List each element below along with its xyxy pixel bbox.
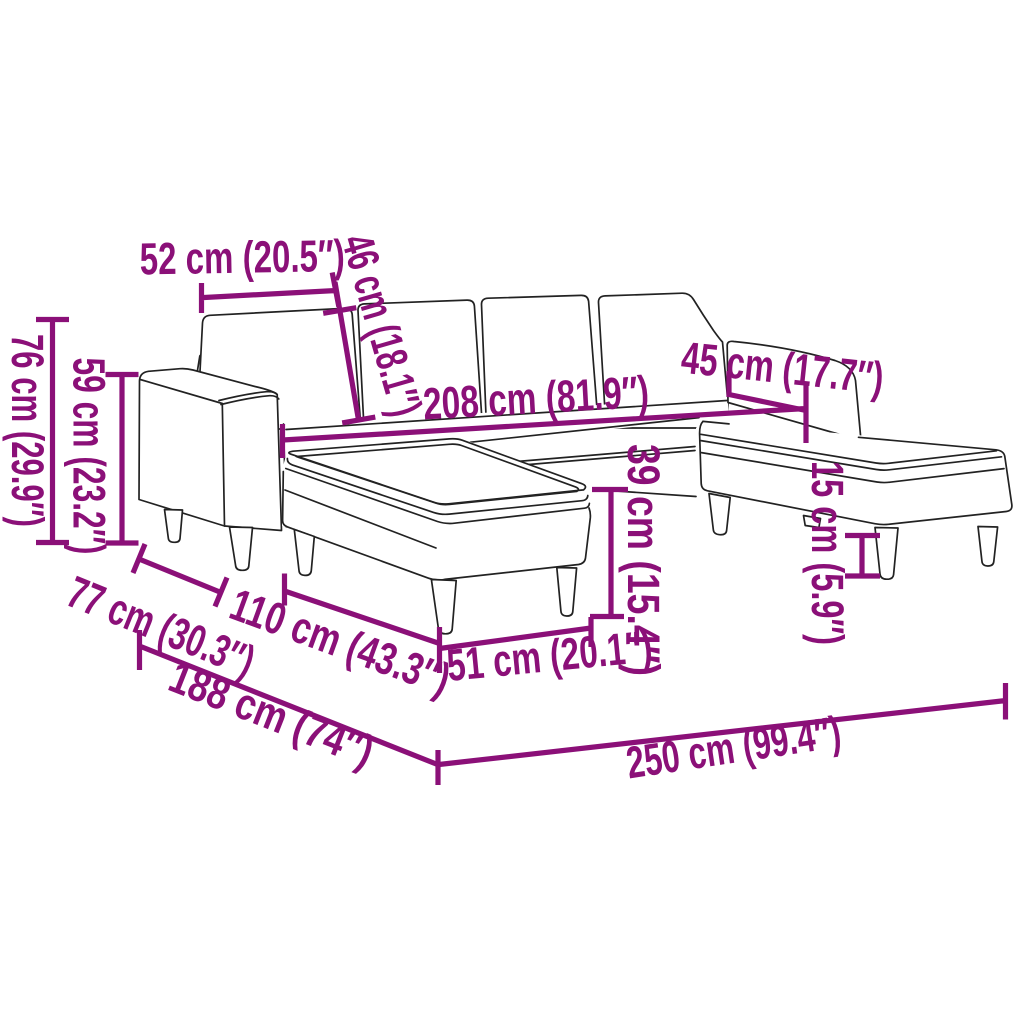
svg-text:15 cm (5.9″): 15 cm (5.9″) — [802, 461, 853, 645]
svg-text:76 cm (29.9″): 76 cm (29.9″) — [2, 334, 53, 527]
svg-text:59 cm (23.2″): 59 cm (23.2″) — [64, 358, 115, 555]
svg-text:52 cm (20.5″): 52 cm (20.5″) — [139, 230, 345, 285]
